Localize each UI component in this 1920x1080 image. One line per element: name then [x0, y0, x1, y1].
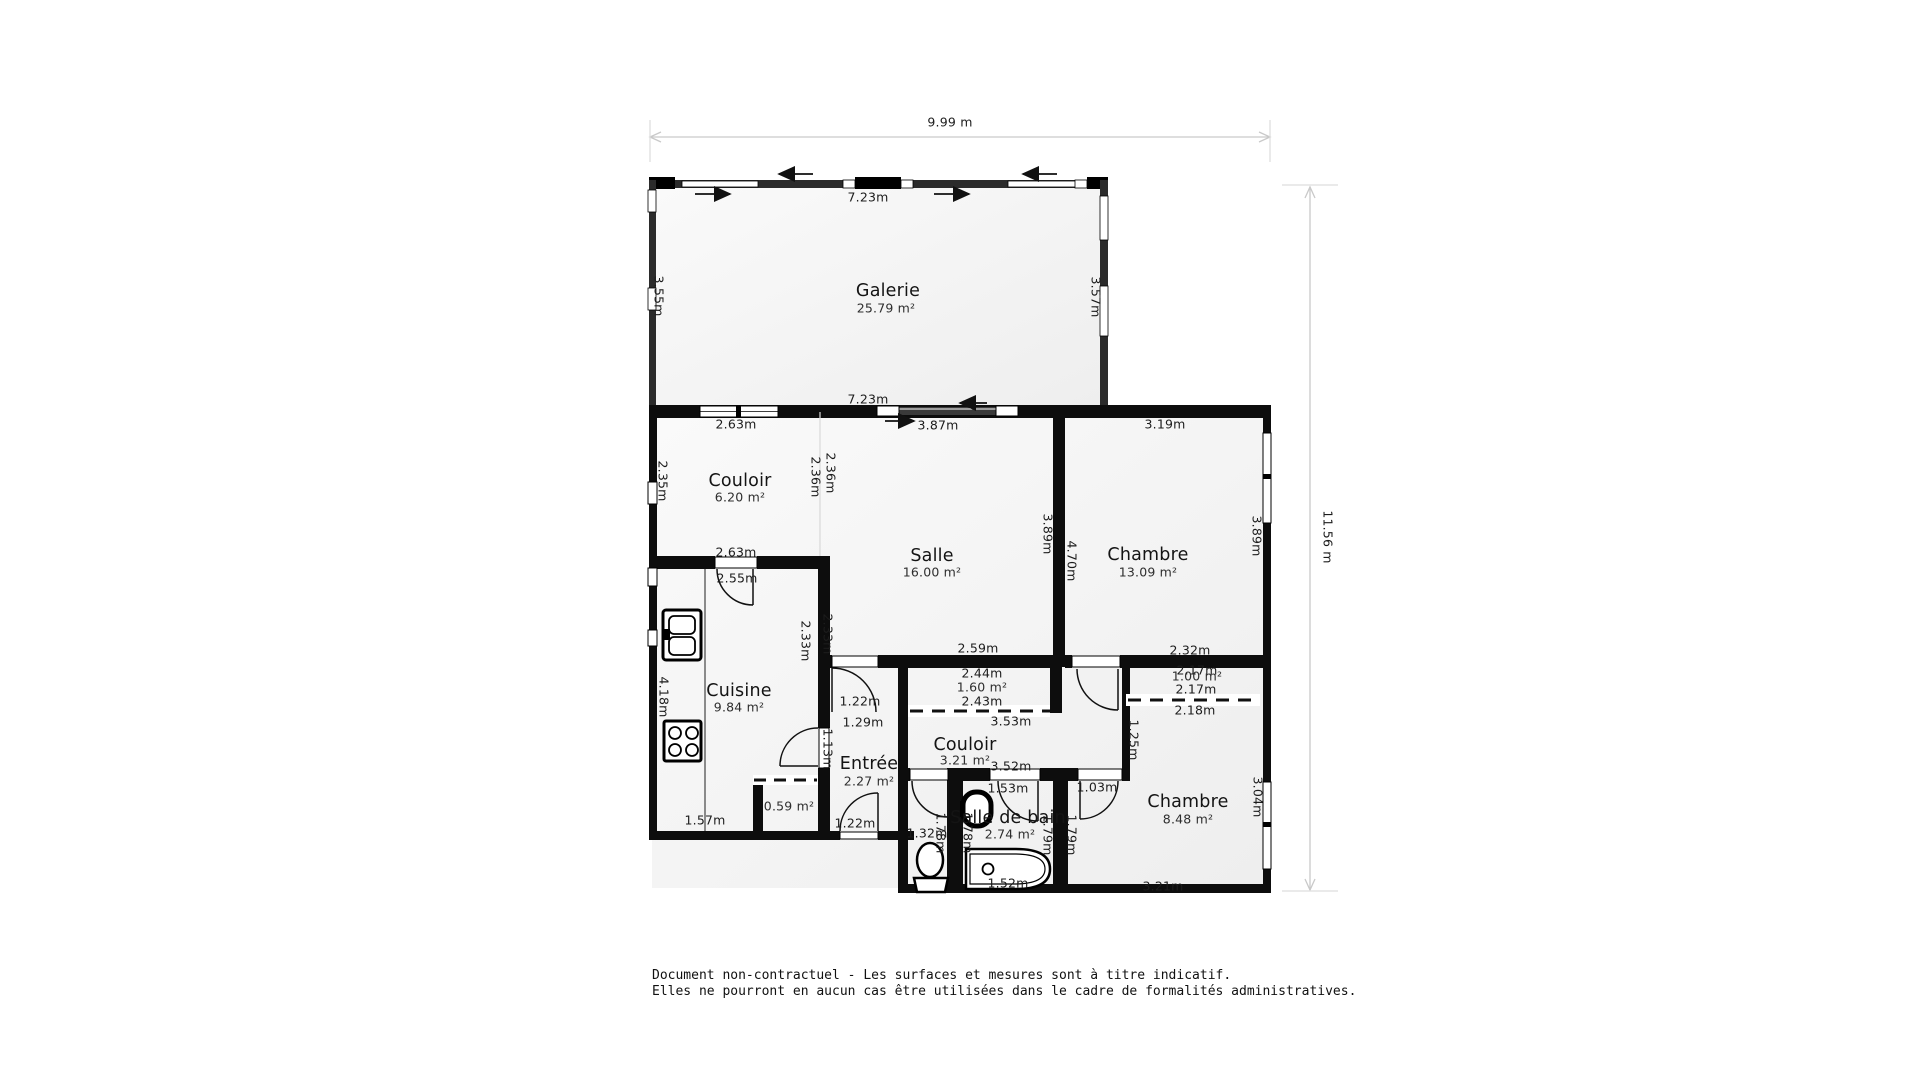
- room-area-cuisine: 9.84 m²: [714, 700, 764, 715]
- dim-chambre-haut-left: 4.70m: [1065, 540, 1080, 581]
- dim-door-entree-couloir: 1.22m: [839, 694, 880, 709]
- kitchen-sink-icon: [662, 610, 701, 660]
- dim-placard-salle-top: 2.44m: [961, 666, 1002, 681]
- dim-chambre-bas-bottom: 3.21m: [1142, 879, 1183, 894]
- dim-overall-width: 9.99 m: [927, 115, 972, 130]
- room-area-salle-de-bain: 2.74 m²: [985, 827, 1035, 842]
- room-area-couloir-haut: 6.20 m²: [715, 490, 765, 505]
- dim-cuisine-right-2: 2.33m: [821, 613, 836, 654]
- room-name-entree: Entrée: [840, 754, 899, 774]
- dim-chambre-haut-top: 3.19m: [1144, 417, 1185, 432]
- dim-passage-entree: 1.29m: [842, 715, 883, 730]
- dim-placard-salle-bottom: 2.43m: [961, 694, 1002, 709]
- room-area-salle: 16.00 m²: [903, 565, 962, 580]
- dim-couloir-haut-bottom: 2.63m: [715, 545, 756, 560]
- room-name-couloir-haut: Couloir: [708, 471, 771, 491]
- dim-galerie-bottom: 7.23m: [847, 392, 888, 407]
- dim-cuisine-top: 2.55m: [716, 571, 757, 586]
- room-name-salle: Salle: [910, 546, 953, 566]
- room-area-chambre-haut: 13.09 m²: [1119, 565, 1178, 580]
- dim-wc-right-1: 1.78m: [934, 812, 949, 853]
- dim-placard-chambre-bottom: 2.17m: [1175, 682, 1216, 697]
- dim-chambre-bas-right: 3.04m: [1251, 776, 1266, 817]
- disclaimer-line-1: Document non-contractuel - Les surfaces …: [652, 968, 1231, 983]
- room-area-couloir-bas: 3.21 m²: [940, 753, 990, 768]
- dim-cuisine-left: 4.18m: [657, 676, 672, 717]
- dim-couloir-bas-bottom: 3.52m: [990, 759, 1031, 774]
- dim-cuisine-bottom: 1.57m: [684, 813, 725, 828]
- dim-chambre-haut-right: 3.89m: [1250, 515, 1265, 556]
- dim-cuisine-right-1: 2.33m: [799, 620, 814, 661]
- room-area-placard-salle: 1.60 m²: [957, 680, 1007, 695]
- room-name-chambre-haut: Chambre: [1107, 545, 1188, 565]
- dim-bathtub-width: 1.52m: [987, 876, 1028, 891]
- dim-door-entree: 1.22m: [834, 816, 875, 831]
- dim-salle-top: 3.87m: [917, 418, 958, 433]
- dim-galerie-right: 3.57m: [1089, 276, 1104, 317]
- room-area-galerie: 25.79 m²: [857, 301, 916, 316]
- dim-placard-chambre-below: 2.18m: [1174, 703, 1215, 718]
- dim-cuisine-right-bas: 1.13m: [821, 728, 836, 769]
- room-area-placard-cuisine: 0.59 m²: [764, 799, 814, 814]
- room-name-galerie: Galerie: [856, 281, 920, 301]
- dim-placard-chambre-left: 1.25m: [1127, 719, 1142, 760]
- dim-couloir-bas-top: 3.53m: [990, 714, 1031, 729]
- stove-icon: [664, 721, 701, 761]
- dim-galerie-left: 3.55m: [652, 275, 667, 316]
- room-area-chambre-bas: 8.48 m²: [1163, 812, 1213, 827]
- dim-sdb-right-2: 1.79m: [1065, 814, 1080, 855]
- room-name-cuisine: Cuisine: [706, 681, 771, 701]
- floorplan-canvas: [0, 0, 1920, 1080]
- dim-overall-height: 11.56 m: [1321, 510, 1336, 563]
- disclaimer-line-2: Elles ne pourront en aucun cas être util…: [652, 984, 1356, 999]
- dim-sdb-right-1: 1.79m: [1041, 814, 1056, 855]
- dim-salle-bottom: 2.59m: [957, 641, 998, 656]
- dim-couloir-haut-top: 2.63m: [715, 417, 756, 432]
- dim-couloir-haut-left: 2.35m: [656, 460, 671, 501]
- dim-chambre-haut-bottom: 2.32m: [1169, 643, 1210, 658]
- floorplan-page: 9.99 m 11.56 m Galerie 25.79 m² 7.23m 7.…: [0, 0, 1920, 1080]
- room-name-chambre-bas: Chambre: [1147, 792, 1228, 812]
- dim-couloir-haut-right-1: 2.36m: [809, 456, 824, 497]
- dim-door-sdb: 1.53m: [987, 781, 1028, 796]
- dim-galerie-top: 7.23m: [847, 190, 888, 205]
- dim-salle-right: 3.89m: [1041, 513, 1056, 554]
- room-area-entree: 2.27 m²: [844, 774, 894, 789]
- dim-door-chambre-bas: 1.03m: [1076, 780, 1117, 795]
- dim-couloir-haut-right-2: 2.36m: [824, 452, 839, 493]
